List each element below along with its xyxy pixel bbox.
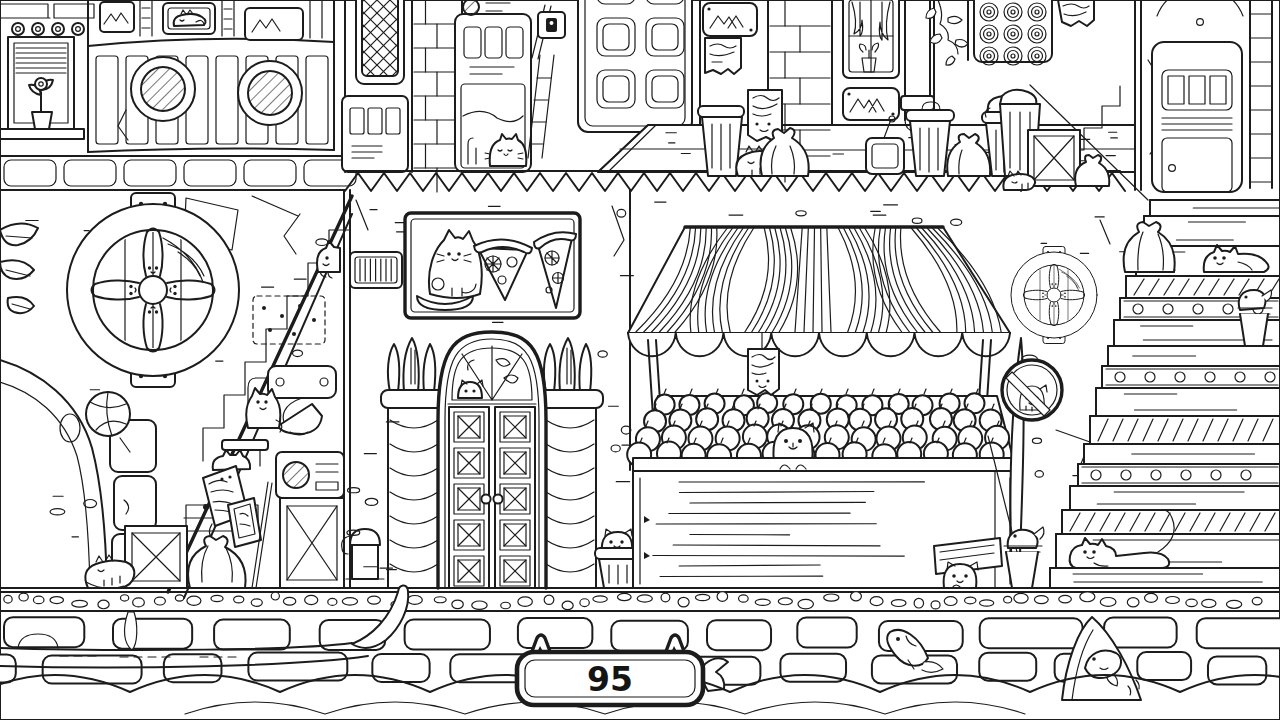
framed-picture [228, 498, 261, 547]
apple-bin [627, 389, 1018, 471]
scene-illustration: 95 [0, 0, 1280, 720]
crate-1 [125, 526, 187, 588]
mountain-sign-2 [843, 88, 899, 120]
cat-in-picture-frame[interactable] [163, 3, 215, 34]
market-stall-awning [628, 227, 1010, 356]
panel-door [578, 0, 692, 132]
vent-grate [350, 252, 402, 288]
cats-found-counter: 95 [587, 660, 633, 699]
pizza-sign [405, 213, 580, 318]
cat-in-transom-window[interactable] [458, 380, 483, 398]
lock-box [538, 12, 565, 38]
crate-2 [280, 498, 344, 588]
porthole-right [238, 61, 302, 125]
basketball[interactable] [86, 392, 130, 436]
torn-poster-2 [1058, 0, 1094, 26]
window-with-blinds [0, 37, 84, 139]
ac-unit [276, 452, 344, 498]
lattice-window [356, 0, 404, 84]
speaker-panel [974, 0, 1052, 65]
curtain-window [843, 0, 899, 78]
porthole-left [131, 57, 195, 121]
right-door [1152, 42, 1242, 192]
mountain-sign [703, 3, 757, 36]
wall-machine [342, 96, 408, 172]
arched-door [438, 332, 546, 588]
game-stage: 95 [0, 0, 1280, 720]
torn-poster [705, 38, 741, 74]
vending-machine [455, 0, 531, 172]
crate-3 [1028, 130, 1080, 186]
no-cats-sign [1002, 360, 1062, 420]
